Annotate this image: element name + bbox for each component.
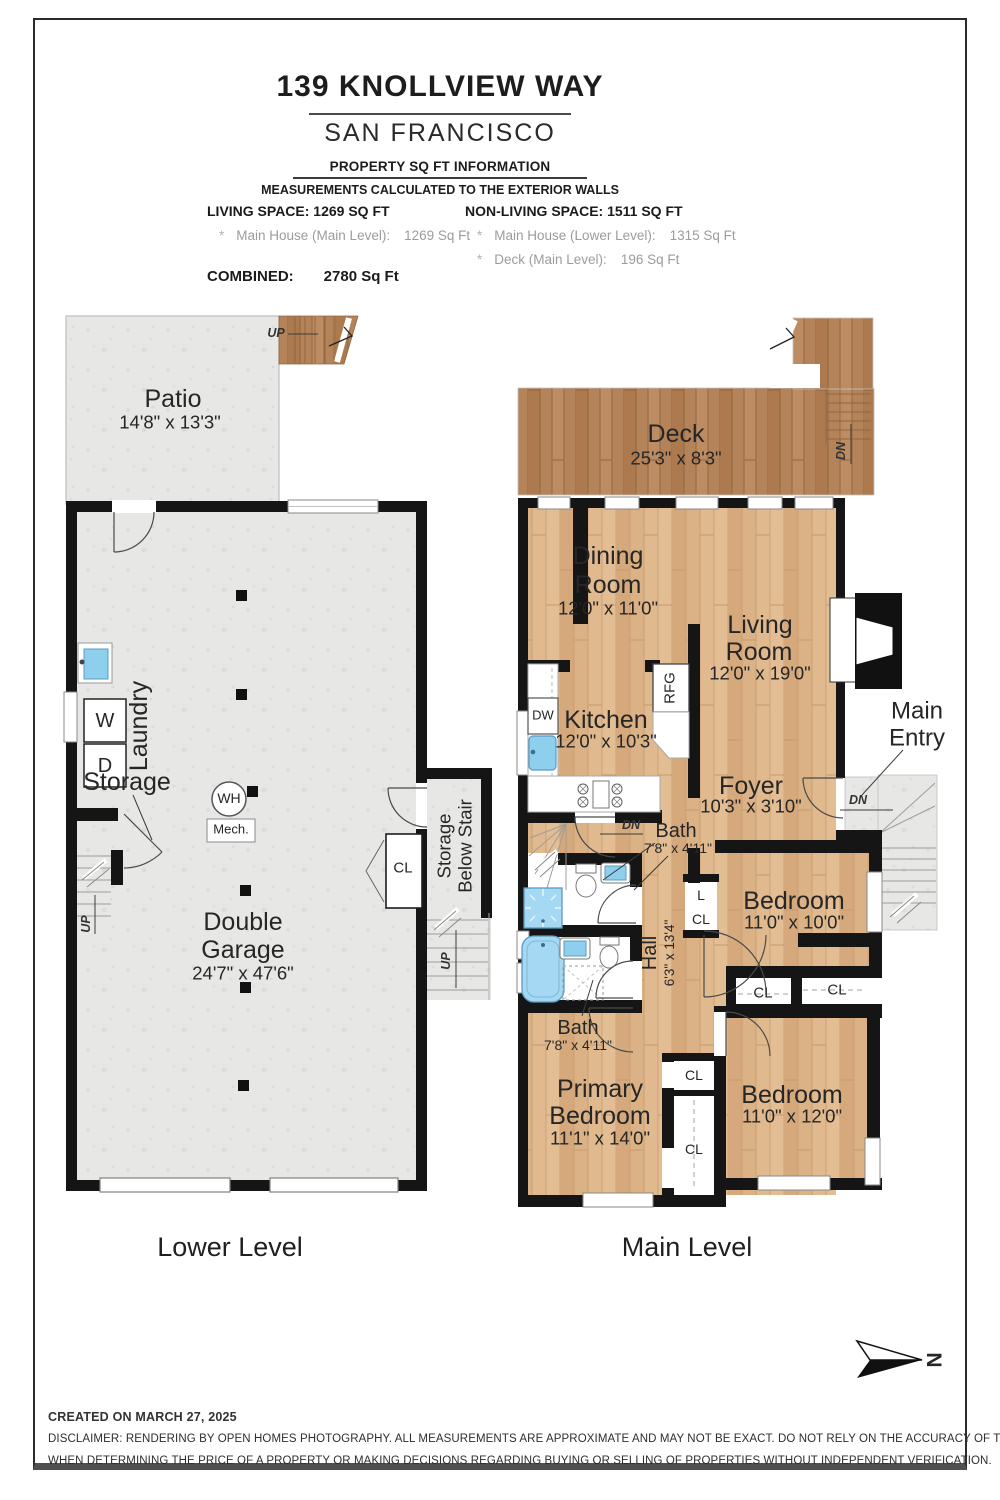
storage-stairs-up-label: UP <box>439 952 453 969</box>
floor-plan-sheet: 139 KNOLLVIEW WAY SAN FRANCISCO PROPERTY… <box>0 0 1000 1500</box>
foyer-dims: 10'3" x 3'10" <box>700 797 801 818</box>
closet-mid2-label: CL <box>827 983 846 1000</box>
sbs-line2: Below Stair <box>454 799 475 893</box>
nonliving-space-heading: NON-LIVING SPACE: 1511 SQ FT <box>465 203 683 219</box>
item-label: Main House (Main Level): <box>236 228 390 243</box>
living-space-item: * Main House (Main Level): 1269 Sq Ft <box>219 228 470 243</box>
water-heater-label: WH <box>217 791 240 807</box>
bath2-dims: 7'8" x 4'11" <box>544 1038 612 1054</box>
nonliving-space-item-1: * Main House (Lower Level): 1315 Sq Ft <box>477 228 736 243</box>
garage-label-line1: Double <box>203 908 282 936</box>
deck-label: Deck <box>648 420 705 448</box>
patio-label: Patio <box>145 385 202 413</box>
item-label: Main House (Lower Level): <box>494 228 655 243</box>
combined-value: 2780 Sq Ft <box>324 268 399 285</box>
garage-stairs-up-label: UP <box>79 915 93 932</box>
title-divider <box>309 113 571 115</box>
sbs-line1: Storage <box>433 814 454 879</box>
garage-dims: 24'7" x 47'6" <box>192 964 293 985</box>
nonliving-space-item-2: * Deck (Main Level): 196 Sq Ft <box>477 252 679 267</box>
item-value: 196 Sq Ft <box>621 252 680 267</box>
hall-name: Hall <box>639 936 661 970</box>
deck-dn-label: DN <box>834 442 848 460</box>
hall-label: Hall 6'3" x 13'4" <box>639 920 679 987</box>
primary-label-line2: Bedroom <box>549 1102 650 1130</box>
washer-label: W <box>96 710 115 732</box>
bedroom1-dims: 11'0" x 10'0" <box>744 913 844 934</box>
bath2-label: Bath <box>557 1017 598 1039</box>
main-entry-label-line1: Main <box>891 699 943 726</box>
bullet: * <box>219 228 224 243</box>
bedroom2-dims: 11'0" x 12'0" <box>742 1107 842 1128</box>
item-value: 1315 Sq Ft <box>670 228 736 243</box>
created-date: CREATED ON MARCH 27, 2025 <box>48 1410 237 1424</box>
dishwasher-label: DW <box>532 709 554 724</box>
storage-label: Storage <box>83 768 171 796</box>
living-dims: 12'0" x 19'0" <box>709 664 810 685</box>
primary-closet-label: CL <box>685 1142 703 1158</box>
patio-up-label: UP <box>267 326 284 340</box>
compass-letter: N <box>921 1352 945 1367</box>
laundry-label: Laundry <box>125 681 153 771</box>
kitchen-dn-label: DN <box>622 818 640 832</box>
combined-total: COMBINED: 2780 Sq Ft <box>207 268 399 285</box>
bullet: * <box>477 228 482 243</box>
patio-dims: 14'8" x 13'3" <box>119 413 220 434</box>
page-title: 139 KNOLLVIEW WAY <box>276 70 603 104</box>
storage-below-stair-label: Storage Below Stair <box>434 799 475 893</box>
bath1-label: Bath <box>655 820 696 842</box>
dining-label-line2: Room <box>575 571 642 599</box>
main-level-caption: Main Level <box>622 1232 753 1262</box>
primary-label-line1: Primary <box>557 1075 643 1103</box>
section-divider <box>293 177 587 179</box>
dining-label-line1: Dining <box>573 542 644 570</box>
primary-closet-top-label: CL <box>685 1068 703 1084</box>
deck-dims: 25'3" x 8'3" <box>630 449 721 470</box>
garage-label-line2: Garage <box>201 936 284 964</box>
lower-level-caption: Lower Level <box>157 1232 303 1262</box>
disclaimer-line2: WHEN DETERMINING THE PRICE OF A PROPERTY… <box>48 1455 992 1467</box>
living-label-line1: Living <box>727 611 792 639</box>
disclaimer-line1: DISCLAIMER: RENDERING BY OPEN HOMES PHOT… <box>48 1433 1000 1445</box>
city-subtitle: SAN FRANCISCO <box>324 119 556 148</box>
sqft-section-title: PROPERTY SQ FT INFORMATION <box>330 159 551 174</box>
primary-dims: 11'1" x 14'0" <box>550 1129 650 1150</box>
bullet: * <box>477 252 482 267</box>
hall-dims: 6'3" x 13'4" <box>662 920 677 987</box>
linen-label: L <box>697 888 705 904</box>
living-space-heading: LIVING SPACE: 1269 SQ FT <box>207 203 390 219</box>
kitchen-dims: 12'0" x 10'3" <box>555 732 656 753</box>
item-label: Deck (Main Level): <box>494 252 607 267</box>
refrigerator-label: RFG <box>663 672 680 704</box>
dining-dims: 12'0" x 11'0" <box>558 599 658 620</box>
mech-label: Mech. <box>213 823 248 838</box>
main-entry-label-line2: Entry <box>889 726 945 753</box>
combined-label: COMBINED: <box>207 268 294 285</box>
bath1-dims: 7'8" x 4'11" <box>644 841 712 857</box>
closet-mid1-label: CL <box>753 986 772 1003</box>
measurement-note: MEASUREMENTS CALCULATED TO THE EXTERIOR … <box>261 183 619 197</box>
entry-dn-label: DN <box>849 793 867 807</box>
hall-closet-label: CL <box>692 912 710 928</box>
item-value: 1269 Sq Ft <box>404 228 470 243</box>
lower-closet-label: CL <box>393 861 412 878</box>
